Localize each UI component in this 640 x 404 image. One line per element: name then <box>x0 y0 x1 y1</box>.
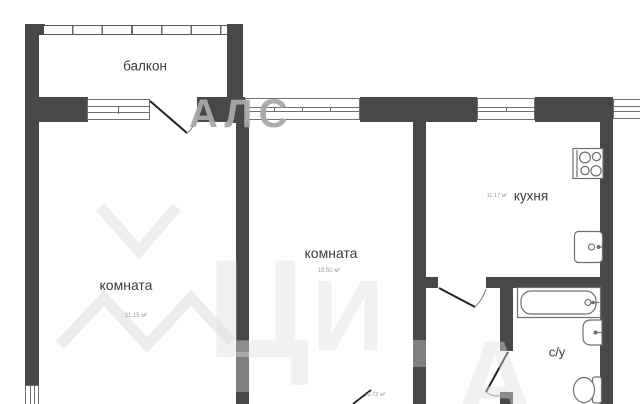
toilet-icon <box>574 377 602 403</box>
floor-plan: Ц И А АЛС балкон комната 31.15 м² комнат… <box>0 0 640 404</box>
stove-icon <box>573 149 603 179</box>
room-area-hallway: 12.72 м² <box>365 392 386 398</box>
balcony-door-swing-icon <box>150 101 197 133</box>
bathroom-door-swing-icon <box>486 352 508 396</box>
room-area-kitchen: 11.17 м² <box>487 193 508 199</box>
kitchen-sink-icon <box>575 232 604 263</box>
room-label-left: комната <box>100 277 153 293</box>
room-label-bathroom: с/у <box>549 345 566 360</box>
room-area-middle: 19.50 м² <box>318 268 341 274</box>
washbasin-icon <box>583 320 602 345</box>
room-label-kitchen: кухня <box>514 189 548 204</box>
room-label-balcony: балкон <box>123 59 167 74</box>
kitchen-door-swing-icon <box>439 288 486 307</box>
bathtub-icon <box>518 288 601 318</box>
room-label-middle: комната <box>305 245 358 261</box>
room-area-left: 31.15 м² <box>125 313 148 319</box>
